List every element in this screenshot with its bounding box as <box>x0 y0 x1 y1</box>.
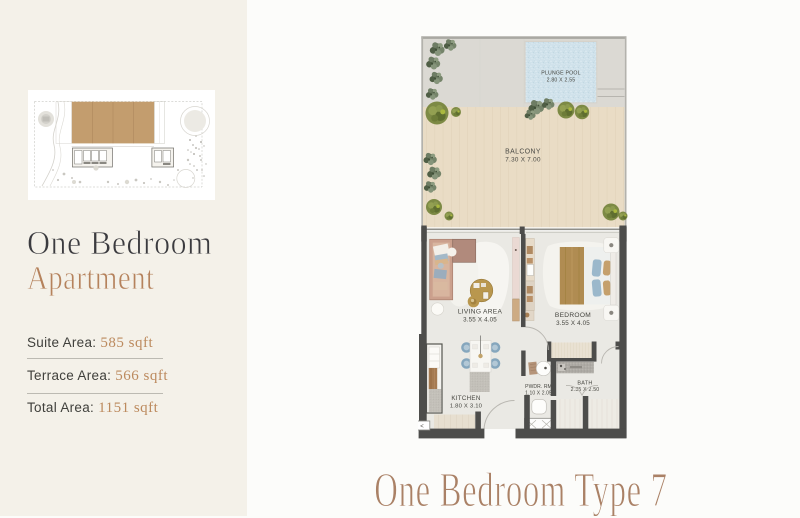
svg-text:BALCONY: BALCONY <box>505 149 541 156</box>
svg-text:3.55 X 4.05: 3.55 X 4.05 <box>556 320 590 327</box>
svg-text:<: < <box>420 424 424 430</box>
svg-text:3.55 X 4.05: 3.55 X 4.05 <box>463 317 497 324</box>
svg-text:PLUNGE POOL: PLUNGE POOL <box>541 71 580 77</box>
svg-text:LIVING AREA: LIVING AREA <box>458 309 503 316</box>
svg-text:BEDROOM: BEDROOM <box>555 312 591 319</box>
svg-text:KITCHEN: KITCHEN <box>451 395 480 402</box>
svg-text:BATH: BATH <box>577 381 592 387</box>
svg-text:1.80 X 3.10: 1.80 X 3.10 <box>450 404 483 410</box>
svg-text:7.30 X 7.00: 7.30 X 7.00 <box>505 157 541 164</box>
svg-text:2.80 X 2.55: 2.80 X 2.55 <box>547 77 576 83</box>
svg-text:PWDR. RM: PWDR. RM <box>525 384 552 390</box>
